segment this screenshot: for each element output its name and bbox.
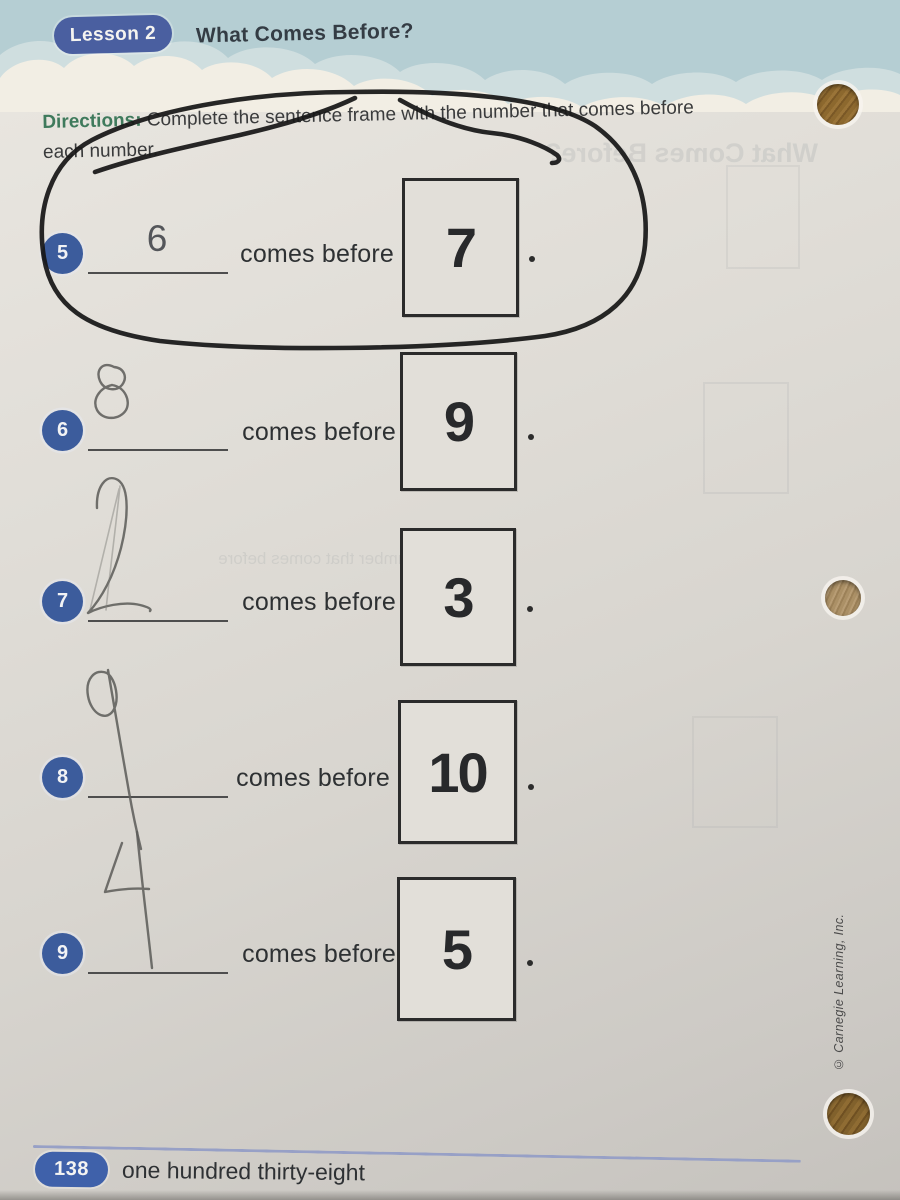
answer-blank[interactable] xyxy=(88,796,228,798)
target-number: 7 xyxy=(446,215,475,280)
handwritten-answer-9 xyxy=(87,670,141,849)
handwritten-answer-2 xyxy=(88,478,151,613)
target-number: 5 xyxy=(442,917,471,982)
directions-text-line2: each number. xyxy=(43,139,159,163)
problem-number-badge: 9 xyxy=(42,933,83,974)
sentence-period xyxy=(527,606,533,612)
target-number-box: 5 xyxy=(397,877,516,1021)
lesson-badge: Lesson 2 xyxy=(54,14,173,54)
printed-example-answer: 6 xyxy=(122,218,192,260)
page-number-word: one hundred thirty-eight xyxy=(122,1157,365,1187)
sentence-period xyxy=(528,784,534,790)
bleedthrough-box xyxy=(726,165,800,269)
handwritten-answer-4 xyxy=(105,832,152,968)
page-number-badge: 138 xyxy=(35,1152,108,1188)
problem-number-badge: 8 xyxy=(42,757,83,798)
comes-before-label: comes before xyxy=(222,764,390,793)
answer-blank[interactable] xyxy=(88,972,228,974)
target-number-box: 9 xyxy=(400,352,517,491)
comes-before-label: comes before xyxy=(228,418,396,447)
answer-blank[interactable] xyxy=(88,272,228,274)
target-number-box: 3 xyxy=(400,528,516,666)
target-number: 9 xyxy=(444,389,473,454)
comes-before-label: comes before xyxy=(228,588,396,617)
copyright-text: © Carnegie Learning, Inc. xyxy=(832,893,846,1071)
hole-punch-bottom xyxy=(827,1093,870,1135)
bleedthrough-box xyxy=(703,382,789,494)
directions-label: Directions: xyxy=(42,110,142,133)
answer-blank[interactable] xyxy=(88,449,228,451)
problem-number-badge: 6 xyxy=(42,410,83,451)
page-title: What Comes Before? xyxy=(196,20,414,49)
target-number-box: 7 xyxy=(402,178,519,317)
hole-punch-top xyxy=(817,84,859,125)
sentence-period xyxy=(527,960,533,966)
hole-punch-middle xyxy=(825,580,861,616)
sentence-period xyxy=(528,434,534,440)
target-number: 3 xyxy=(443,565,472,630)
answer-blank[interactable] xyxy=(88,620,228,622)
handwritten-answer-2-light-stroke xyxy=(90,486,120,610)
handwritten-answer-8 xyxy=(95,365,127,418)
sentence-period xyxy=(529,256,535,262)
bleedthrough-text: the number that comes before xyxy=(115,549,445,569)
bleedthrough-box xyxy=(692,716,778,828)
problem-number-badge: 7 xyxy=(42,581,83,622)
comes-before-label: comes before xyxy=(228,940,396,969)
target-number-box: 10 xyxy=(398,700,517,844)
problem-number-badge: 5 xyxy=(42,233,83,274)
worksheet-page: Lesson 2 What Comes Before? What Comes B… xyxy=(0,0,900,1200)
target-number: 10 xyxy=(428,740,486,805)
comes-before-label: comes before xyxy=(226,240,394,269)
